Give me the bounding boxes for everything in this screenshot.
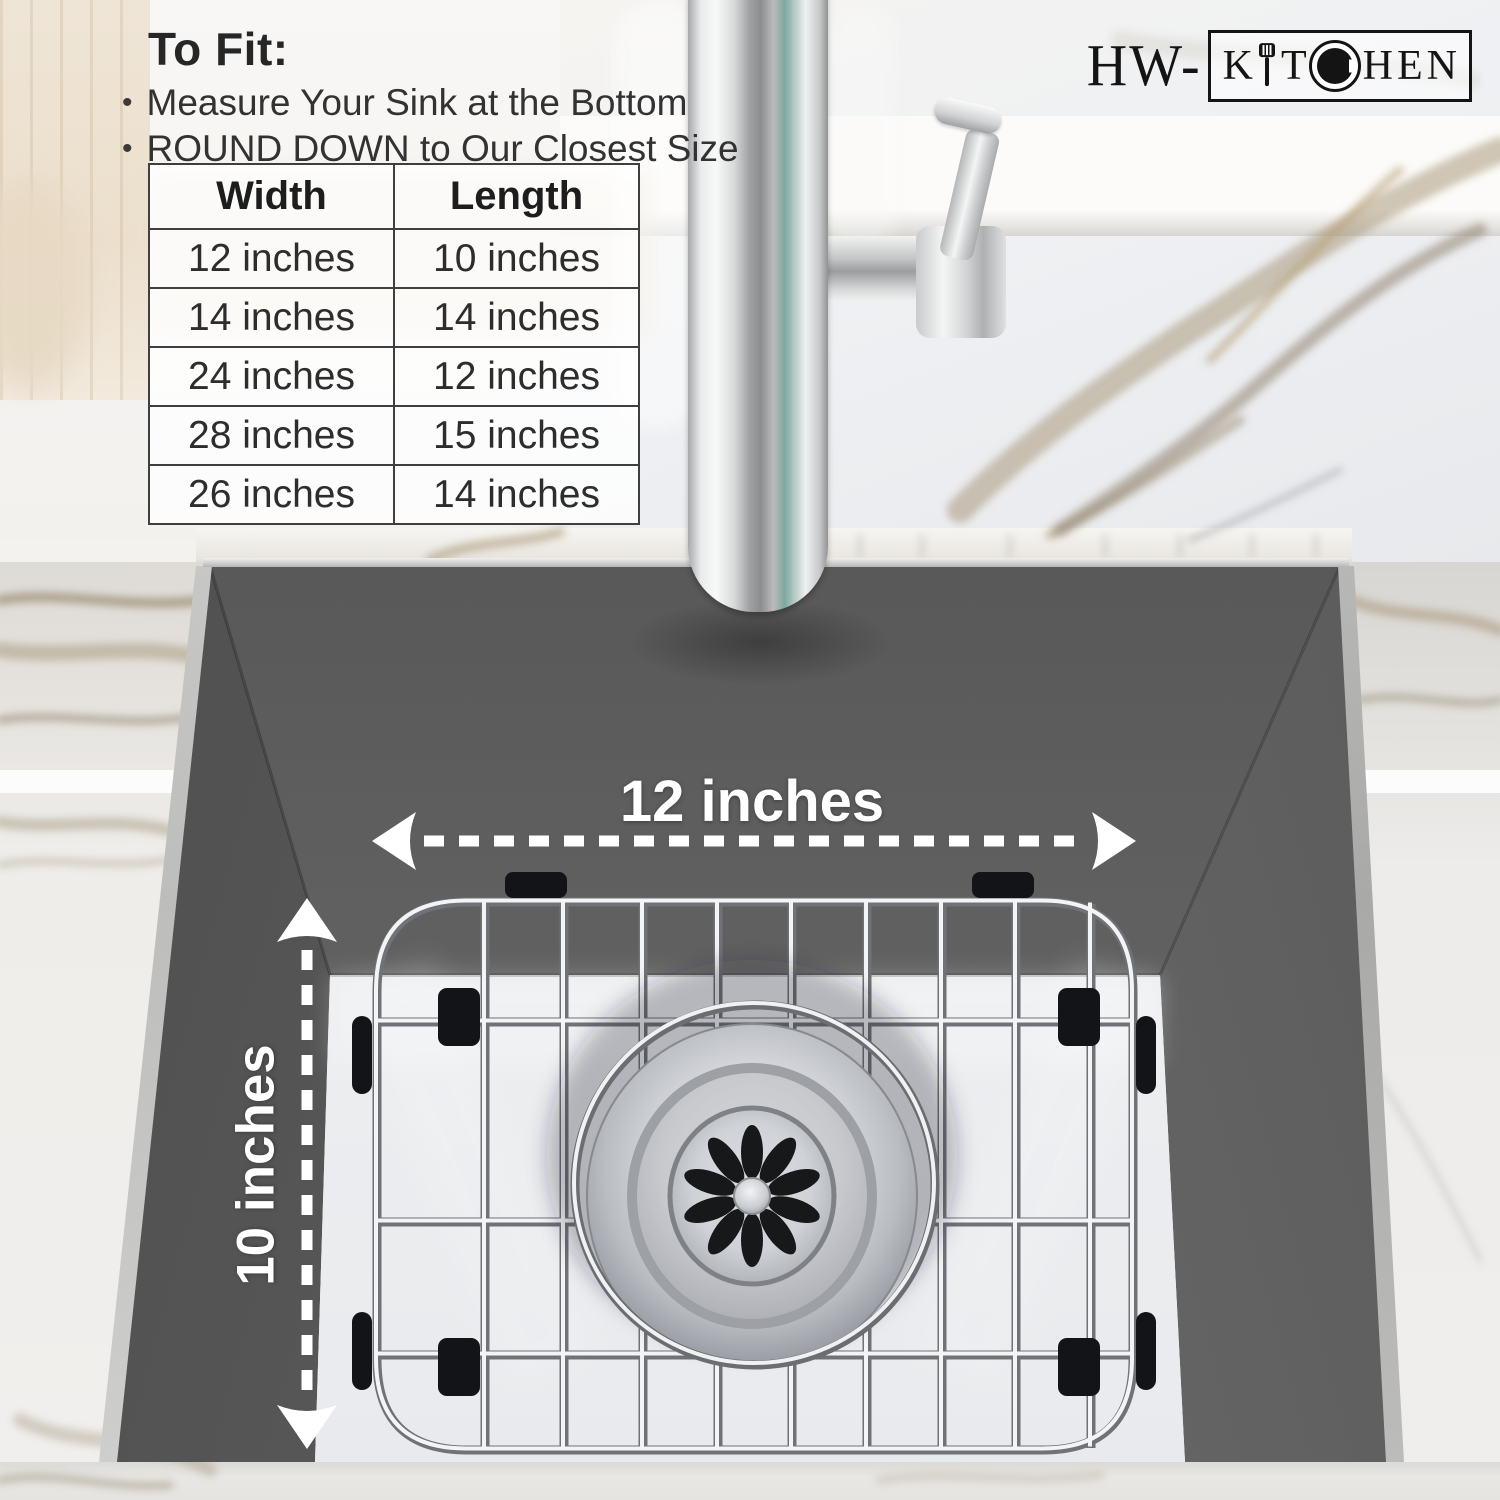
length-cell: 14 inches xyxy=(394,465,639,524)
table-row: 28 inches 15 inches xyxy=(149,406,639,465)
logo-box: K I T C H E N xyxy=(1208,30,1472,102)
length-cell: 14 inches xyxy=(394,288,639,347)
logo-letter: E xyxy=(1397,45,1423,87)
fit-guide-title: To Fit: xyxy=(148,22,289,76)
logo-letter: T xyxy=(1281,45,1307,87)
length-cell: 10 inches xyxy=(394,229,639,288)
width-cell: 12 inches xyxy=(149,229,394,288)
width-cell: 14 inches xyxy=(149,288,394,347)
bullet-icon: • xyxy=(122,80,133,126)
table-row: 12 inches 10 inches xyxy=(149,229,639,288)
logo-letter-c: C xyxy=(1311,45,1359,87)
column-header-width: Width xyxy=(149,164,394,229)
fit-guide-bullets: • Measure Your Sink at the Bottom • ROUN… xyxy=(122,80,739,172)
logo-letter: K xyxy=(1223,45,1253,87)
logo-prefix: HW- xyxy=(1087,32,1202,99)
logo-letter: H xyxy=(1363,45,1393,87)
table-row: 26 inches 14 inches xyxy=(149,465,639,524)
table-row: 24 inches 12 inches xyxy=(149,347,639,406)
logo-letter: N xyxy=(1427,45,1457,87)
length-cell: 15 inches xyxy=(394,406,639,465)
width-cell: 24 inches xyxy=(149,347,394,406)
width-cell: 26 inches xyxy=(149,465,394,524)
spatula-icon xyxy=(1258,42,1276,88)
width-cell: 28 inches xyxy=(149,406,394,465)
length-cell: 12 inches xyxy=(394,347,639,406)
logo-letter-i: I xyxy=(1257,45,1277,87)
lens-icon xyxy=(1309,40,1361,92)
table-header-row: Width Length xyxy=(149,164,639,229)
brand-logo: HW- K I T C H E N xyxy=(1087,30,1472,102)
countertop-front xyxy=(0,1462,1500,1500)
size-chart-table: Width Length 12 inches 10 inches 14 inch… xyxy=(148,163,640,525)
column-header-length: Length xyxy=(394,164,639,229)
fit-guide-bullet: • Measure Your Sink at the Bottom xyxy=(122,80,739,126)
fit-guide-bullet-text: Measure Your Sink at the Bottom xyxy=(147,80,688,126)
product-infographic: To Fit: • Measure Your Sink at the Botto… xyxy=(0,0,1500,1500)
table-row: 14 inches 14 inches xyxy=(149,288,639,347)
depth-dimension-label: 10 inches xyxy=(226,1044,287,1286)
bullet-icon: • xyxy=(122,126,133,172)
width-dimension-label: 12 inches xyxy=(620,768,884,835)
faucet-blur-reflection2 xyxy=(824,0,896,250)
